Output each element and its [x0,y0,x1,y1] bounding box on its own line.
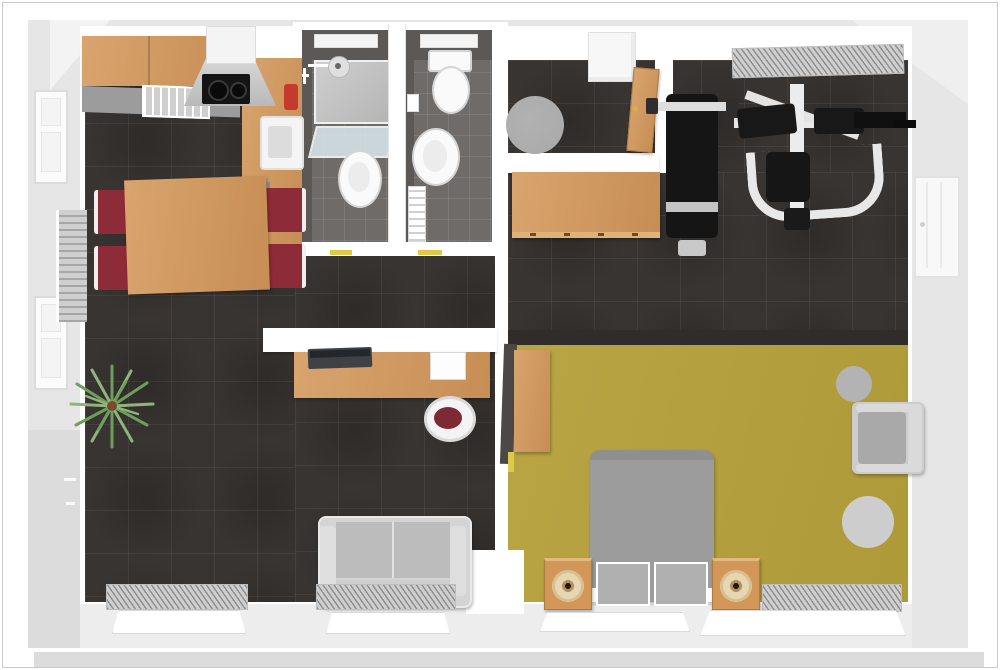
window-pane [41,98,61,126]
laptop-screen [310,349,370,358]
bed [590,450,714,602]
burner-small [230,82,247,99]
armchair-back [908,404,922,472]
window-pane [41,132,61,172]
round-rug-large [842,496,894,548]
shower [314,60,390,124]
bench-strap [666,202,718,212]
radiator-bedroom [762,584,902,612]
window-pane [41,338,61,378]
kitchen-sink-basin [268,126,292,158]
cooktop [202,74,250,104]
red-appliance [284,84,298,110]
armchair-seat [858,412,906,464]
wall-detail-mark [66,502,75,505]
window-sill-living-2 [326,612,450,634]
bedroom-doorway [466,550,524,614]
door-handle [920,222,925,227]
bathroom-block-walls [293,22,508,250]
dining-table [124,176,270,295]
bathroom-left-window [314,34,378,48]
range-hood-duct [206,26,256,64]
radiator-living-1 [106,584,248,610]
speaker-right [712,558,760,610]
office-chair-seat [434,407,462,429]
sideboard-handle [530,233,536,236]
window-sill-bedroom-2 [700,610,906,636]
bathroom-radiator [408,186,426,242]
gym-foot-pad [784,208,810,230]
bath-right-threshold [418,250,442,255]
window-sill-living-1 [112,610,246,634]
sideboard-handle [598,233,604,236]
toilet-paper-holder [407,94,419,112]
bedroom-gym-wall [505,330,908,345]
cabinet-seam [148,36,150,86]
shower-arm [308,64,330,67]
bed-mattress-foot-right [654,562,708,606]
radiator-gym [732,44,905,78]
bathroom-bottom-wall [293,242,508,256]
notepad [430,352,466,380]
toilet-bowl [432,66,470,114]
bathroom-right-window [420,34,478,48]
sideboard-handle [564,233,570,236]
gym-handle-bar [894,120,916,128]
office-chair [424,396,476,442]
hallway-rug [506,96,564,154]
window-left-top [34,90,68,184]
radiator-living-2 [316,584,456,610]
bathroom-left-sink-basin [348,162,370,192]
right-wall-door [914,176,960,278]
round-rug-small [836,366,872,402]
shower-head-center [335,63,341,69]
foreground-wall-strip [34,652,984,667]
door-frame-line [940,182,942,268]
plant [68,362,156,450]
barbell-plate-left [646,98,658,114]
armchair-arm-top [856,404,912,412]
dining-chair [262,188,306,232]
sideboard-handle [632,233,638,236]
gym-seat [766,152,810,202]
armchair-arm-bottom [856,464,912,472]
burner-large [208,80,229,101]
barbell [650,102,734,111]
wardrobe [514,350,550,452]
floor-plan-render [0,0,1000,670]
radiator-left-wall [56,210,87,322]
sideboard [512,172,660,238]
sofa-cushion-gap [392,522,394,578]
speaker-left [544,558,592,610]
bathroom-right-sink-basin [423,140,447,172]
wall-detail-mark [64,478,76,481]
weight-bench [666,94,718,238]
laptop [308,347,373,369]
gym-pad-left [737,103,798,139]
bedroom-threshold [508,452,514,472]
bath-left-threshold [330,250,352,255]
bench-foot [678,240,706,256]
bed-mattress-foot-left [596,562,650,606]
hallway-bottom-wall [497,153,659,173]
hallway-cabinet [588,32,636,82]
kitchen-sink [260,116,304,170]
armchair [852,402,924,474]
door-frame-line [926,182,928,268]
bed-head-shade [590,450,714,460]
window-sill-bedroom-1 [540,612,690,632]
office-nook-wall [263,328,497,352]
door-handle [633,106,638,111]
multi-gym [726,82,908,234]
bathroom-divider-wall [388,24,406,248]
